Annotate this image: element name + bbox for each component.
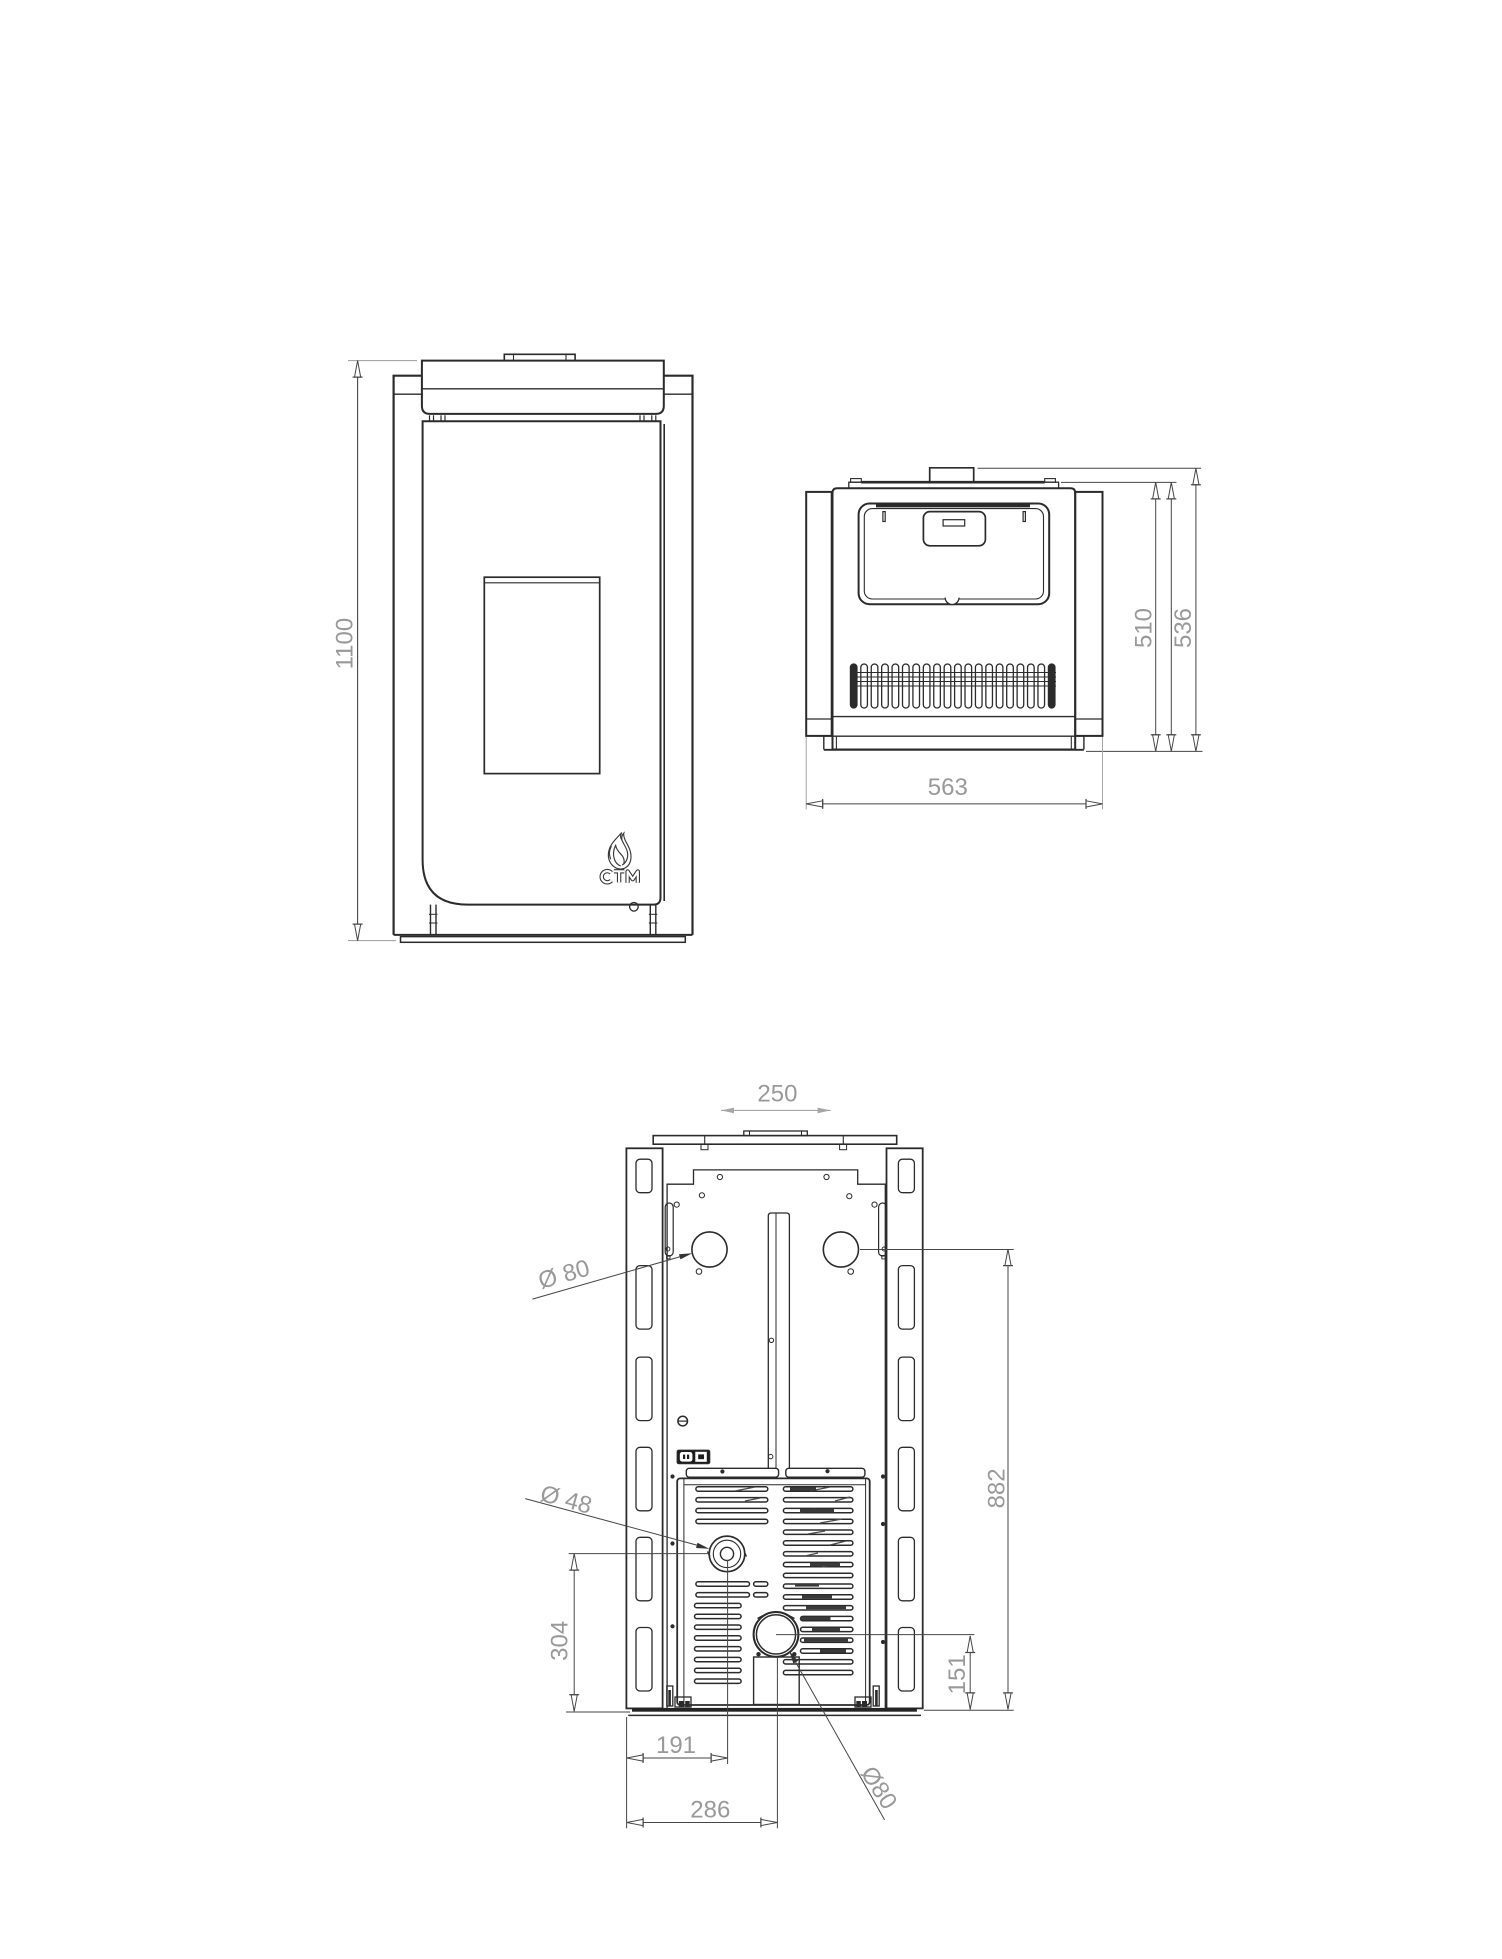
svg-text:563: 563 (928, 774, 968, 801)
svg-text:151: 151 (944, 1654, 971, 1694)
svg-text:510: 510 (1131, 608, 1158, 648)
svg-text:1100: 1100 (332, 618, 359, 670)
svg-text:536: 536 (1170, 608, 1197, 648)
svg-text:191: 191 (656, 1732, 696, 1759)
svg-text:250: 250 (757, 1081, 797, 1108)
svg-text:304: 304 (547, 1621, 574, 1661)
svg-text:882: 882 (984, 1468, 1011, 1508)
svg-text:286: 286 (690, 1797, 730, 1824)
